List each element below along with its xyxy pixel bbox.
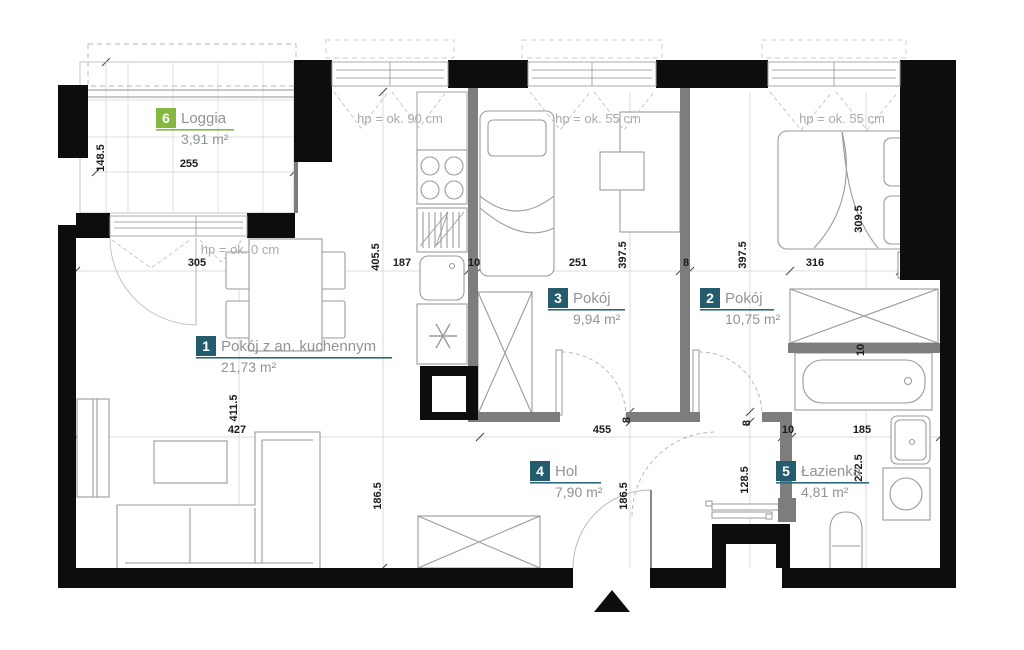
room-number-1: 1 xyxy=(202,338,210,354)
room-name-5: Łazienka xyxy=(801,463,862,480)
dim-bath-entry: 128.5 xyxy=(739,466,751,494)
dim-bath-top-wall: 10 xyxy=(855,344,867,356)
kitchen-sink xyxy=(420,256,464,300)
room-area-6: 3,91 m² xyxy=(181,131,229,147)
hp-label-kitchen: hp = ok. 90 cm xyxy=(357,111,443,126)
room-number-3: 3 xyxy=(554,290,562,306)
hp-label-room2: hp = ok. 55 cm xyxy=(799,111,885,126)
dim-balcony-opening: 305 xyxy=(188,257,206,269)
dim-hol-width: 455 xyxy=(593,424,611,436)
bath-sink xyxy=(891,416,930,464)
drainer xyxy=(417,208,467,252)
room-number-5: 5 xyxy=(782,463,790,479)
entrance-marker xyxy=(594,590,630,612)
room-name-3: Pokój xyxy=(573,290,611,307)
dim-room2-width: 316 xyxy=(806,257,824,269)
dim-hol-wall: 8 xyxy=(621,417,633,423)
room-name-1: Pokój z an. kuchennym xyxy=(221,338,376,355)
dim-room1-depth: 411.5 xyxy=(228,395,240,422)
fridge xyxy=(417,304,467,364)
double-bed xyxy=(778,131,920,278)
coffee-table xyxy=(154,441,227,483)
room-number-6: 6 xyxy=(162,110,170,126)
dim-bath-width: 185 xyxy=(853,424,871,436)
room-number-4: 4 xyxy=(536,463,544,479)
room-area-4: 7,90 m² xyxy=(555,484,603,500)
room3-door xyxy=(556,350,626,417)
bathtub xyxy=(795,353,932,410)
room-name-4: Hol xyxy=(555,463,578,480)
room-area-3: 9,94 m² xyxy=(573,311,621,327)
room-label-room3: 3 Pokój 9,94 m² xyxy=(548,288,625,327)
room-area-5: 4,81 m² xyxy=(801,484,849,500)
dim-room2-inner: 309.5 xyxy=(853,205,865,233)
room-number-2: 2 xyxy=(706,290,714,306)
hp-label-room3: hp = ok. 55 cm xyxy=(555,111,641,126)
room-label-hol: 4 Hol 7,90 m² xyxy=(530,461,603,500)
floor-plan-drawing: 148.5 255 305 405.5 187 10 251 397.5 8 3… xyxy=(0,0,1024,650)
room2-door xyxy=(693,350,762,415)
wardrobe-hol xyxy=(418,516,540,568)
room-label-room2: 2 Pokój 10,75 m² xyxy=(700,288,781,327)
dim-loggia-width: 255 xyxy=(180,158,198,170)
floor-plan-page: 148.5 255 305 405.5 187 10 251 397.5 8 3… xyxy=(0,0,1024,650)
entrance-door xyxy=(573,490,651,568)
toilet xyxy=(830,512,862,570)
room-label-room1: 1 Pokój z an. kuchennym 21,73 m² xyxy=(196,336,392,375)
dim-kitchen-width: 187 xyxy=(393,257,411,269)
room-name-2: Pokój xyxy=(725,290,763,307)
dim-bath-wall: 10 xyxy=(782,424,794,436)
dim-room2-door-wall: 8 xyxy=(741,420,753,426)
room-area-2: 10,75 m² xyxy=(725,311,781,327)
dim-room3-width: 251 xyxy=(569,257,587,269)
kitchen-counter xyxy=(417,92,467,364)
dim-hol-depth: 186.5 xyxy=(618,482,630,510)
shaft-inner xyxy=(432,376,466,412)
desk xyxy=(600,112,680,232)
room-name-6: Loggia xyxy=(181,110,227,127)
hp-label-balcony: hp = ok. 0 cm xyxy=(201,242,279,257)
loggia-railing xyxy=(86,44,298,97)
dim-room2-depth: 397.5 xyxy=(737,241,749,269)
dim-kitchen-depth: 405.5 xyxy=(370,243,382,271)
wardrobe-room2 xyxy=(790,289,938,343)
dim-room3-depth: 397.5 xyxy=(617,241,629,269)
dim-kitchen-wall: 10 xyxy=(468,257,480,269)
washing-machine xyxy=(883,468,930,520)
dim-room1-lower-depth: 186.5 xyxy=(372,482,384,510)
tv-cabinet xyxy=(77,399,109,497)
furniture xyxy=(77,92,938,572)
dim-room1-width: 427 xyxy=(228,424,246,436)
room-area-1: 21,73 m² xyxy=(221,359,277,375)
single-bed xyxy=(480,111,554,276)
room-label-loggia: 6 Loggia 3,91 m² xyxy=(156,108,234,147)
bathroom-sliding-door xyxy=(632,432,786,519)
dim-room23-wall: 8 xyxy=(683,257,689,269)
stove xyxy=(417,150,467,204)
balcony-door-arc xyxy=(110,238,197,325)
wardrobe-room3 xyxy=(478,292,532,414)
dim-loggia-depth: 148.5 xyxy=(95,144,107,172)
